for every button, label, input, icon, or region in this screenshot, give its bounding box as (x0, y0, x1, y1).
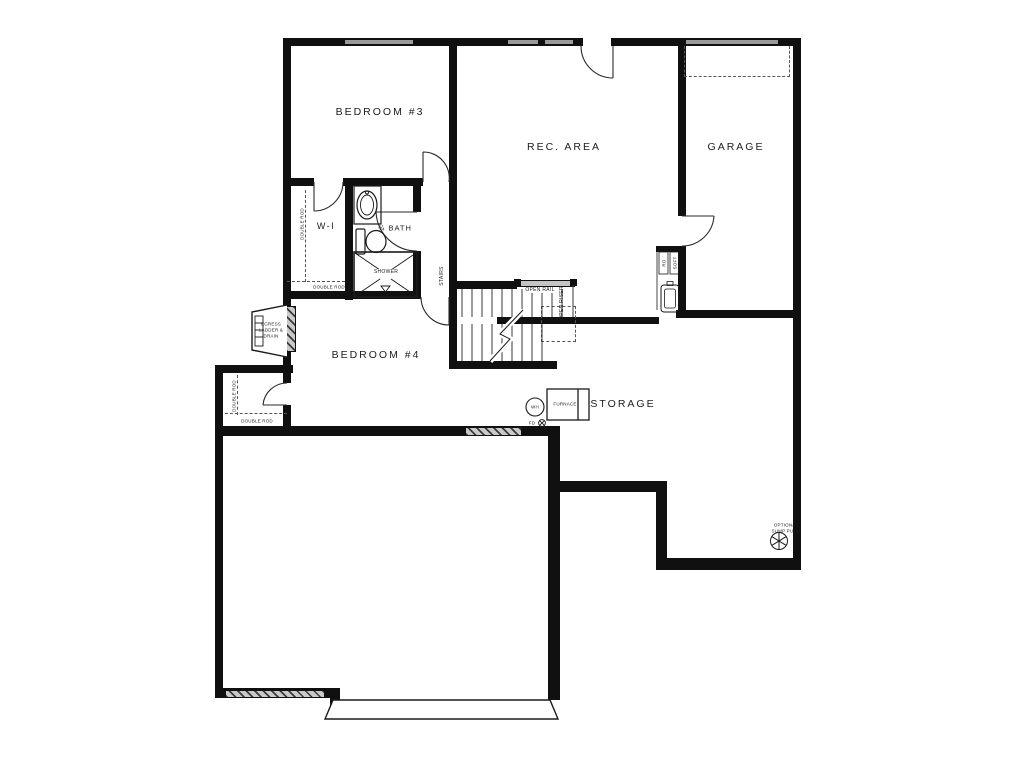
annotation-furnace: FURNACE (553, 402, 576, 407)
annotation-double-rod: DOUBLE ROD (313, 285, 345, 290)
stair-break-line (490, 310, 523, 361)
room-label-walk-in: W-I (317, 221, 335, 231)
annotation-egress-2: LADDER & (259, 328, 283, 333)
door-bedroom3 (423, 152, 449, 182)
door-garage (682, 216, 714, 246)
annotation-utility-left: RO (661, 259, 666, 266)
annotation-stairs: STAIRS (439, 266, 445, 286)
room-label-bedroom3: BEDROOM #3 (336, 106, 425, 118)
room-label-garage: GARAGE (708, 141, 765, 153)
annotation-double-rod: DOUBLE ROD (232, 380, 237, 412)
sump-pump-icon (771, 533, 788, 550)
door-rec-exterior (581, 46, 613, 78)
door-bedroom4 (421, 297, 449, 325)
annotation-egress-1: EGRESS (261, 322, 281, 327)
floor-drain-icon (539, 420, 546, 427)
annotation-sump-1: OPTIONAL (774, 523, 798, 528)
annotation-double-rod: DOUBLE ROD (241, 419, 273, 424)
annotation-shower: SHOWER (373, 269, 399, 275)
room-label-rec-area: REC. AREA (527, 141, 601, 153)
bath-fixtures (354, 186, 417, 297)
annotation-floor-drain: FD (529, 421, 535, 426)
utility-sink-icon (661, 282, 679, 313)
annotation-egress-3: DRAIN (263, 334, 278, 339)
window-well-bottom (325, 700, 558, 719)
annotation-open-rail: OPEN RAIL (524, 287, 555, 293)
door-closet-bedroom4 (263, 383, 287, 405)
annotation-sump-2: SUMP PUMP (772, 529, 801, 534)
room-label-storage: STORAGE (590, 398, 655, 410)
floor-plan: BEDROOM #3 REC. AREA GARAGE W-I ¾ BATH B… (0, 0, 1024, 768)
plan-linework (0, 0, 1024, 768)
door-walk-in (314, 182, 343, 211)
room-label-bedroom4: BEDROOM #4 (332, 349, 421, 361)
shower-head-icon (381, 286, 390, 292)
annotation-double-rod: DOUBLE ROD (300, 208, 305, 240)
room-label-bath: ¾ BATH (378, 224, 412, 233)
stair-treads (462, 285, 573, 361)
annotation-open-riser: OPEN RISER (559, 286, 565, 320)
annotation-utility-right: SOFT (672, 257, 677, 270)
toilet-icon (356, 229, 386, 254)
annotation-water-heater: WH (531, 405, 539, 410)
